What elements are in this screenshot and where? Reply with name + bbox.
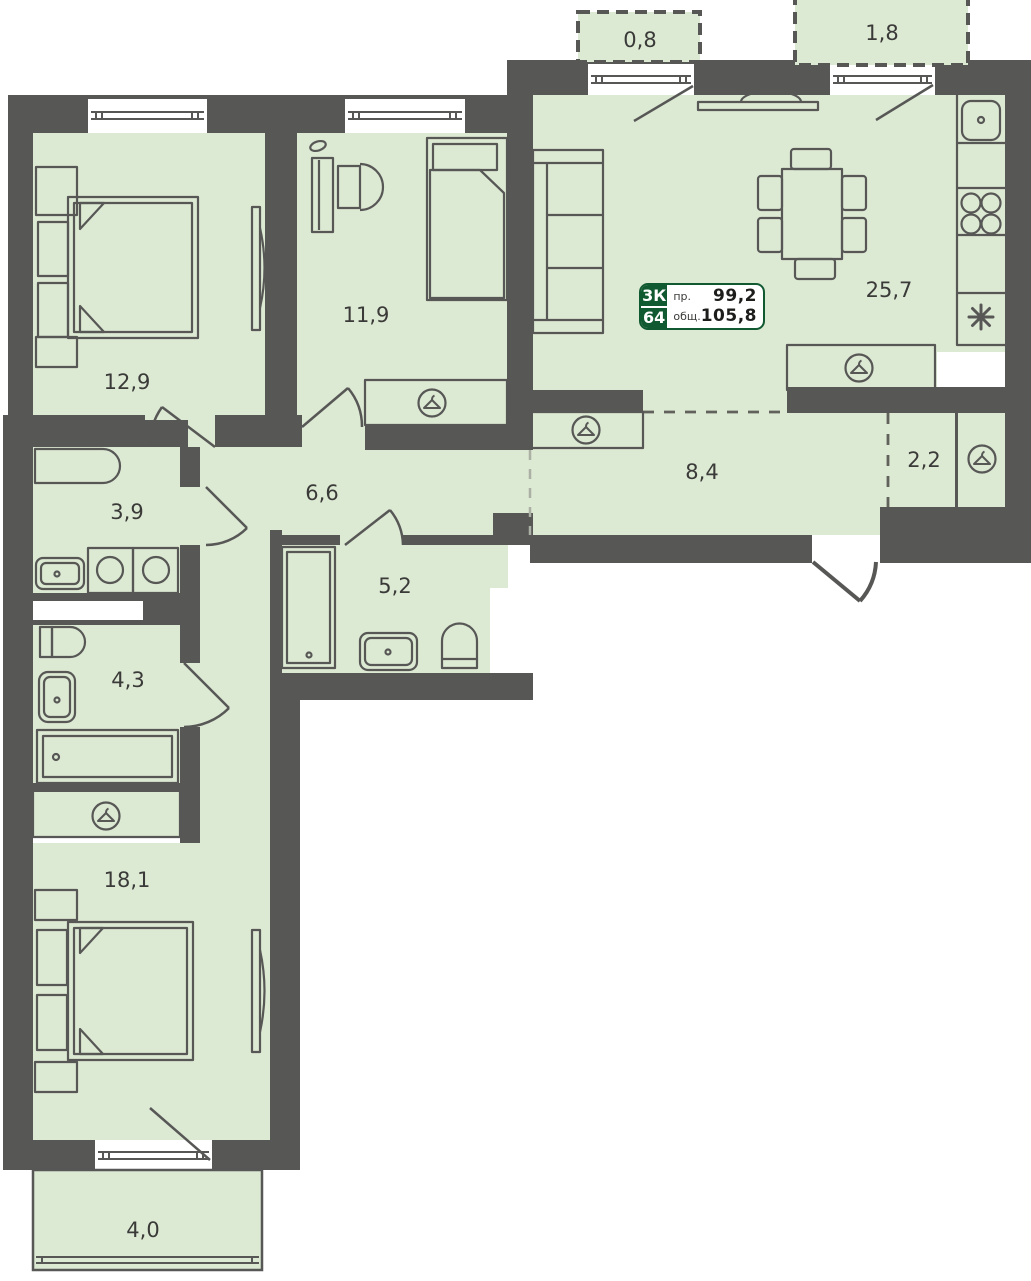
area-label-room-middle: 11,9 <box>343 303 390 327</box>
area-label-balcony-bottom: 4,0 <box>126 1218 159 1242</box>
area-label-bathroom-small: 3,9 <box>110 500 143 524</box>
area-label-bathroom-lower: 4,3 <box>111 668 144 692</box>
projected-area-value: 99,2 <box>713 286 757 306</box>
area-label-bedroom-bottom: 18,1 <box>104 868 151 892</box>
projected-area-label: пр. <box>673 290 691 303</box>
info-card-right-column: пр. 99,2 общ. 105,8 <box>667 285 763 328</box>
area-label-pantry: 2,2 <box>907 448 940 472</box>
window-living-left <box>588 64 694 95</box>
total-area-value: 105,8 <box>701 306 757 326</box>
apartment-info-card: 3К 64 пр. 99,2 общ. 105,8 <box>639 283 765 330</box>
area-label-bathroom-shower: 5,2 <box>378 574 411 598</box>
floor-plan: 0,8 1,8 12,9 11,9 25,7 3,9 6,6 8,4 2,2 5… <box>0 0 1031 1281</box>
info-card-left-column: 3К 64 <box>641 285 667 328</box>
area-label-balcony-top-right: 1,8 <box>865 21 898 45</box>
area-label-corridor: 8,4 <box>685 460 718 484</box>
floor-plan-drawing: 0,8 1,8 12,9 11,9 25,7 3,9 6,6 8,4 2,2 5… <box>0 0 1031 1281</box>
window-bedroom-bottom <box>95 1140 212 1170</box>
area-label-kitchen-living: 25,7 <box>866 278 913 302</box>
projected-area-row: пр. 99,2 <box>673 286 757 306</box>
fridge-asterisk-icon <box>969 305 993 329</box>
window-bedroom-left <box>88 99 207 133</box>
total-area-label: общ. <box>673 310 700 323</box>
unit-number-badge: 64 <box>641 308 667 329</box>
area-label-hall: 6,6 <box>305 481 338 505</box>
entrance-door <box>813 562 876 601</box>
window-room-middle <box>345 99 465 133</box>
area-label-balcony-top-left: 0,8 <box>623 28 656 52</box>
area-label-bedroom-left: 12,9 <box>104 370 151 394</box>
rooms-code-badge: 3К <box>641 285 667 308</box>
window-kitchen <box>830 64 935 95</box>
total-area-row: общ. 105,8 <box>673 306 757 326</box>
